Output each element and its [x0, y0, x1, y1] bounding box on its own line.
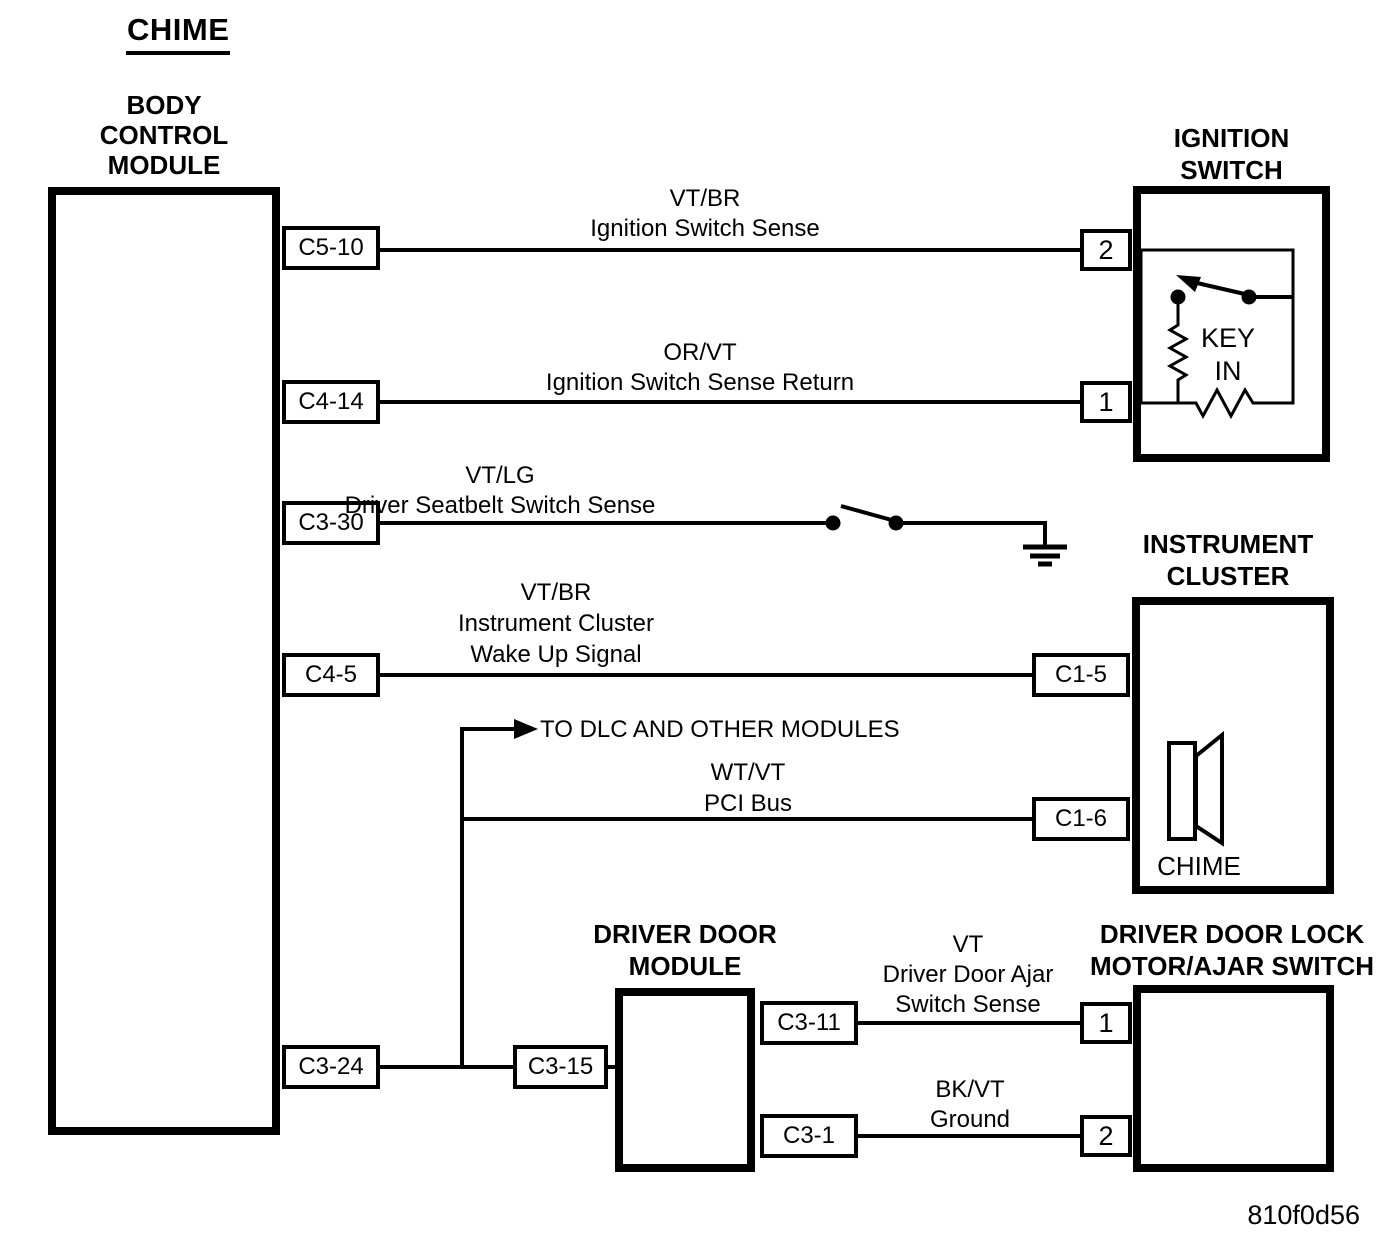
driver-door-module-title: DRIVER DOOR MODULE [585, 918, 785, 982]
wire-color-code: VT/LG [300, 461, 700, 491]
ignition-terminal-1: 1 [1080, 381, 1132, 423]
bcm-label-line3: MODULE [48, 150, 280, 180]
wire-name: Wake Up Signal [356, 639, 756, 670]
ground-symbol-icon [1023, 547, 1067, 564]
bcm-box [48, 187, 280, 1135]
wire-name: Ignition Switch Sense [505, 214, 905, 244]
seatbelt-switch-icon [826, 506, 904, 531]
wire-name: PCI Bus [548, 788, 948, 819]
cluster-connector-c1-6: C1-6 [1032, 797, 1130, 841]
bcm-label-line1: BODY [48, 90, 280, 120]
cluster-connector-c1-5: C1-5 [1032, 653, 1130, 697]
wire-dlc-branch [462, 729, 516, 1067]
dlc-arrow-icon [514, 719, 538, 739]
bcm-connector-c3-24: C3-24 [282, 1045, 380, 1089]
wire-label-pci-bus: WT/VT PCI Bus [548, 757, 948, 819]
wire-color-code: VT [768, 930, 1168, 960]
wire-label-ignition-sense-return: OR/VT Ignition Switch Sense Return [500, 338, 900, 398]
bcm-label-line2: CONTROL [48, 120, 280, 150]
chime-speaker-label: CHIME [1138, 851, 1260, 882]
wire-seatbelt-to-ground [896, 523, 1045, 545]
wire-label-cluster-wake-up: VT/BR Instrument Cluster Wake Up Signal [356, 577, 756, 670]
instrument-cluster-box [1132, 597, 1334, 894]
ignition-switch-title: IGNITION SWITCH [1133, 122, 1330, 186]
wire-color-code: OR/VT [500, 338, 900, 368]
wire-color-code: WT/VT [548, 757, 948, 788]
wire-name: Driver Door Ajar [768, 960, 1168, 990]
dlc-branch-note: TO DLC AND OTHER MODULES [540, 715, 900, 745]
bcm-label: BODY CONTROL MODULE [48, 90, 280, 180]
figure-id: 810f0d56 [1185, 1200, 1360, 1231]
bcm-connector-c5-10: C5-10 [282, 226, 380, 270]
bcm-connector-c4-14: C4-14 [282, 380, 380, 424]
wire-label-ignition-sense: VT/BR Ignition Switch Sense [505, 184, 905, 244]
wire-color-code: BK/VT [770, 1075, 1170, 1105]
page-title: CHIME [126, 12, 230, 55]
wire-label-seatbelt-sense: VT/LG Driver Seatbelt Switch Sense [300, 461, 700, 521]
ignition-terminal-2: 2 [1080, 229, 1132, 271]
driver-door-module-box [615, 988, 755, 1172]
wire-color-code: VT/BR [505, 184, 905, 214]
wire-name: Driver Seatbelt Switch Sense [300, 491, 700, 521]
wire-name: Ground [770, 1105, 1170, 1135]
wire-name: Ignition Switch Sense Return [500, 368, 900, 398]
wire-label-door-ajar-sense: VT Driver Door Ajar Switch Sense [768, 930, 1168, 1020]
wire-name: Switch Sense [768, 990, 1168, 1020]
door-module-connector-c3-15: C3-15 [513, 1045, 608, 1089]
key-in-label: KEY IN [1167, 322, 1289, 388]
wire-color-code: VT/BR [356, 577, 756, 608]
wire-name: Instrument Cluster [356, 608, 756, 639]
wire-label-door-ground: BK/VT Ground [770, 1075, 1170, 1135]
chime-wiring-diagram: CHIME BODY CONTROL MODULE C5-10 C4-14 C3… [0, 0, 1392, 1256]
instrument-cluster-title: INSTRUMENT CLUSTER [1117, 528, 1339, 592]
